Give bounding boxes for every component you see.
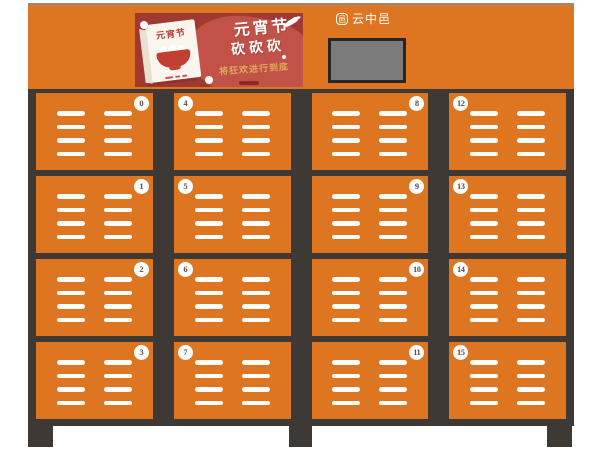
vent-slats: [470, 194, 545, 239]
locker-door-15[interactable]: 15: [449, 342, 566, 419]
locker-number-badge: 9: [409, 179, 424, 194]
cabinet-header: 元宵节 元宵节 砍砍砍 将狂欢进行到底: [28, 3, 574, 89]
locker-door-7[interactable]: 7: [174, 342, 291, 419]
locker-door-10[interactable]: 10: [312, 259, 429, 336]
locker-grid: 0123456789101112131415: [28, 89, 574, 426]
locker-door-9[interactable]: 9: [312, 176, 429, 253]
locker-number-badge: 6: [178, 262, 193, 277]
locker-number-badge: 10: [409, 262, 424, 277]
locker-door-11[interactable]: 11: [312, 342, 429, 419]
tangyuan-bowl-icon: [155, 43, 192, 72]
locker-door-3[interactable]: 3: [36, 342, 153, 419]
vent-slats: [195, 111, 270, 156]
vent-slats: [57, 194, 132, 239]
locker-door-8[interactable]: 8: [312, 93, 429, 170]
brand-name: 云中邑: [352, 10, 391, 27]
vent-slats: [195, 194, 270, 239]
locker-door-12[interactable]: 12: [449, 93, 566, 170]
calendar-small-text: [151, 73, 201, 81]
brand-seal-icon: 邑: [336, 13, 348, 25]
locker-door-5[interactable]: 5: [174, 176, 291, 253]
locker-number-badge: 15: [453, 345, 468, 360]
locker-number-badge: 12: [453, 96, 468, 111]
locker-cabinet: 元宵节 元宵节 砍砍砍 将狂欢进行到底: [28, 3, 574, 447]
locker-number-badge: 5: [178, 179, 193, 194]
page: 元宵节 元宵节 砍砍砍 将狂欢进行到底: [0, 0, 600, 450]
locker-number-badge: 11: [409, 345, 424, 360]
locker-number-badge: 0: [134, 96, 149, 111]
cabinet-leg: [289, 426, 312, 447]
promo-banner: 元宵节 元宵节 砍砍砍 将狂欢进行到底: [135, 13, 303, 87]
festival-calendar-card: 元宵节: [145, 19, 202, 83]
locker-number-badge: 13: [453, 179, 468, 194]
banner-fine-print: [239, 81, 259, 85]
vent-slats: [195, 360, 270, 405]
locker-door-2[interactable]: 2: [36, 259, 153, 336]
locker-door-13[interactable]: 13: [449, 176, 566, 253]
dot-icon: [282, 55, 286, 59]
vent-slats: [332, 111, 407, 156]
cabinet-leg: [28, 426, 53, 447]
locker-number-badge: 8: [409, 96, 424, 111]
locker-door-14[interactable]: 14: [449, 259, 566, 336]
locker-number-badge: 2: [134, 262, 149, 277]
vent-slats: [470, 277, 545, 322]
locker-number-badge: 4: [178, 96, 193, 111]
display-screen[interactable]: [328, 38, 406, 83]
vent-slats: [57, 111, 132, 156]
cabinet-leg: [547, 426, 572, 447]
locker-door-6[interactable]: 6: [174, 259, 291, 336]
brand-logo: 邑 云中邑: [336, 10, 391, 27]
vent-slats: [332, 277, 407, 322]
calendar-title: 元宵节: [145, 24, 196, 43]
locker-door-4[interactable]: 4: [174, 93, 291, 170]
locker-number-badge: 14: [453, 262, 468, 277]
locker-number-badge: 7: [178, 345, 193, 360]
locker-number-badge: 3: [134, 345, 149, 360]
vent-slats: [470, 360, 545, 405]
vent-slats: [332, 360, 407, 405]
vent-slats: [332, 194, 407, 239]
cabinet-base: [28, 426, 574, 447]
vent-slats: [57, 360, 132, 405]
pin-dot-icon: [140, 21, 148, 29]
locker-door-0[interactable]: 0: [36, 93, 153, 170]
vent-slats: [57, 277, 132, 322]
vent-slats: [195, 277, 270, 322]
vent-slats: [470, 111, 545, 156]
locker-door-1[interactable]: 1: [36, 176, 153, 253]
locker-number-badge: 1: [134, 179, 149, 194]
